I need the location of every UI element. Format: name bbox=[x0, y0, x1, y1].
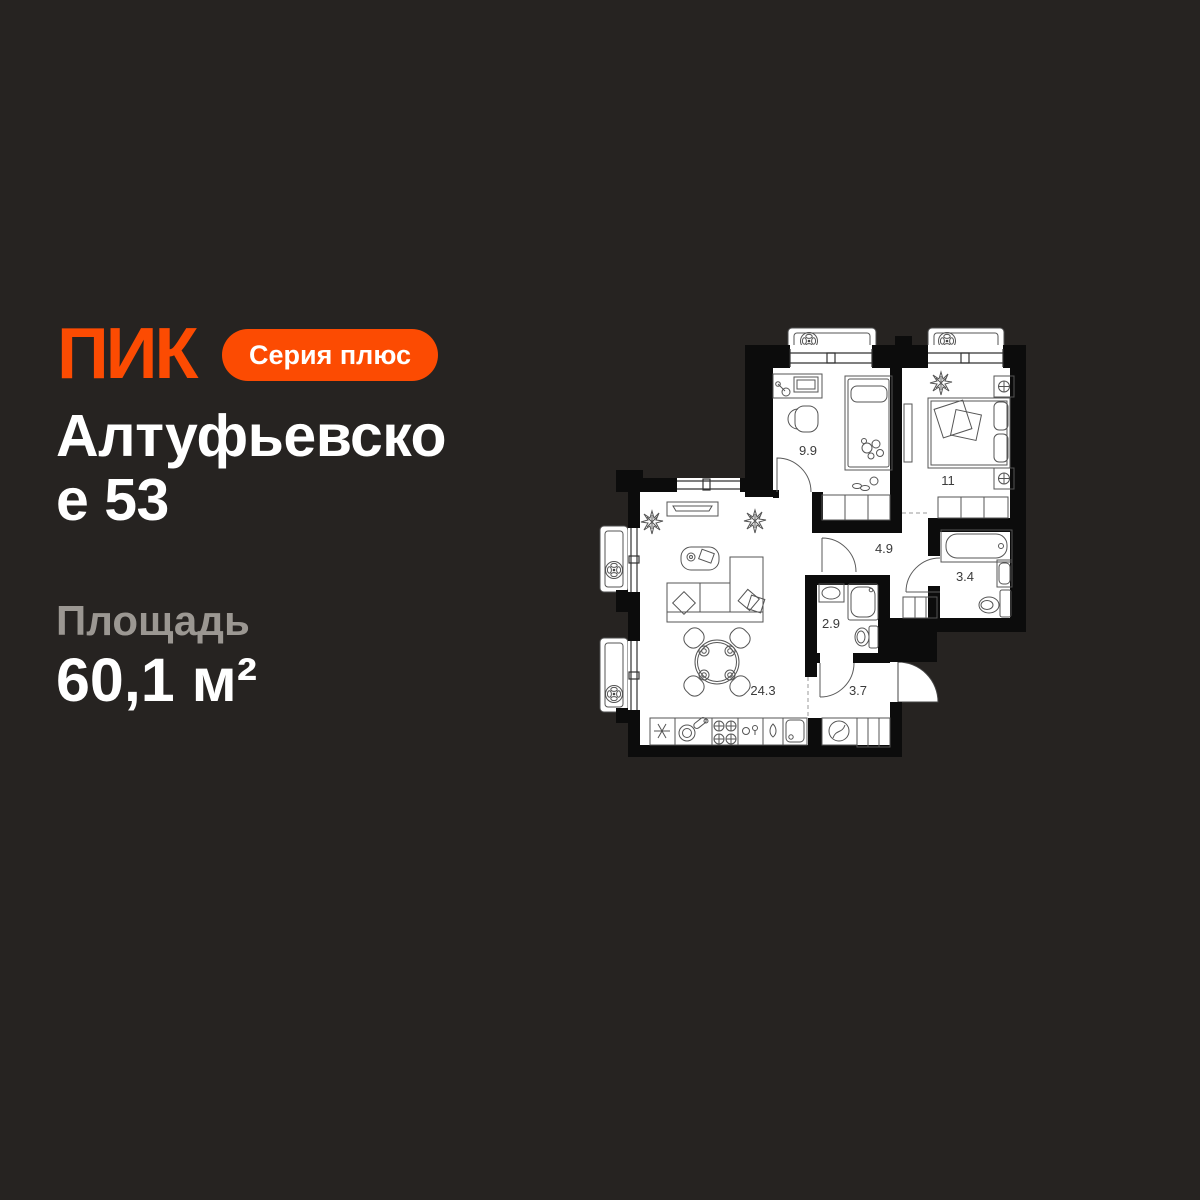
room-label-living-kitchen: 24.3 bbox=[750, 683, 775, 698]
room-label-entry-hall: 3.7 bbox=[849, 683, 867, 698]
balcony-ac-unit bbox=[600, 638, 628, 712]
entry-door bbox=[898, 662, 938, 702]
balcony-ac-unit bbox=[600, 526, 628, 592]
promo-card: ПИК Серия плюс Алтуфьевско е 53 Площадь … bbox=[0, 0, 1200, 1200]
room-label-bedroom-1: 9.9 bbox=[799, 443, 817, 458]
apartment-floor bbox=[628, 345, 1026, 757]
room-label-shower-room: 2.9 bbox=[822, 616, 840, 631]
room-label-hallway: 4.9 bbox=[875, 541, 893, 556]
floor-plan: 9.9 11 4.9 3.4 2.9 24.3 3.7 bbox=[0, 0, 1200, 1200]
room-label-bedroom-2: 11 bbox=[941, 473, 955, 488]
room-label-bathroom: 3.4 bbox=[956, 569, 974, 584]
